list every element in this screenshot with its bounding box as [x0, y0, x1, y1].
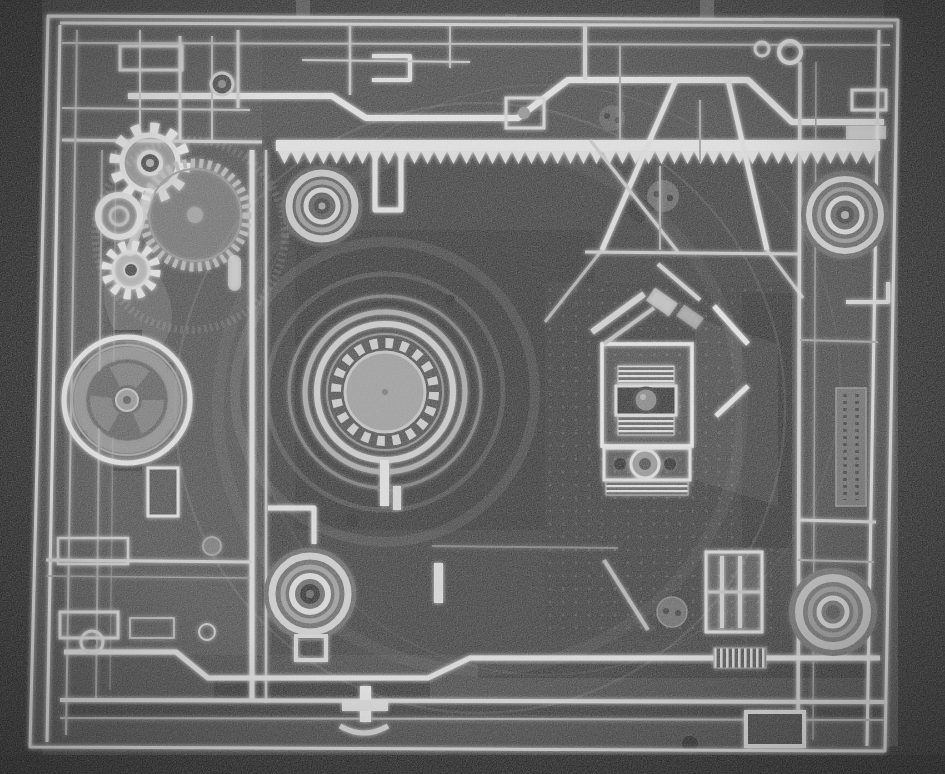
- film-overlay-layer: [0, 0, 945, 774]
- xray-screenshot: [0, 0, 945, 774]
- xray-radiograph-canvas: [0, 0, 945, 774]
- vignette: [0, 0, 945, 774]
